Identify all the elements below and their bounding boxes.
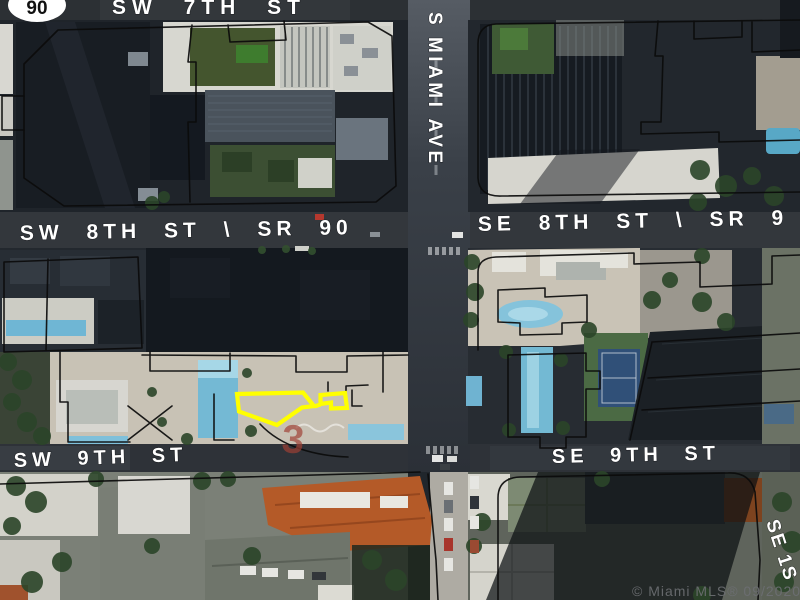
roof-lawn [236, 45, 268, 63]
block-bottom-right [468, 472, 800, 600]
sand-lot [756, 56, 800, 130]
glass-tower [205, 90, 335, 142]
car-gray [370, 232, 380, 237]
roof-path [298, 158, 332, 188]
block-middle-right [466, 248, 800, 444]
pool-shallow [508, 307, 548, 321]
light-paving [556, 20, 624, 56]
aerial-parcel-map[interactable]: SW 7TH ST S MIAMI AVE SW 8TH ST \ SR 90 … [0, 0, 800, 600]
pool [348, 424, 404, 440]
rooftop-unit [492, 252, 526, 272]
pool-small [466, 376, 482, 406]
rooftop-unit [556, 262, 606, 280]
roof-equipment [380, 496, 408, 508]
parked-car [444, 500, 453, 513]
parked-car [444, 538, 453, 551]
roof-detail [300, 270, 370, 320]
garden-patch [268, 160, 294, 182]
block-middle-left [0, 246, 408, 444]
shield-number: 90 [26, 0, 47, 19]
parked-car [470, 540, 479, 553]
light-roof [118, 476, 190, 534]
building-edge-strip [0, 24, 13, 94]
car-white [447, 456, 457, 462]
roof-equipment [300, 492, 370, 508]
bright-facade [336, 118, 388, 160]
roof-dot [295, 246, 309, 251]
rooftop-unit [128, 52, 148, 66]
roof-detail [170, 258, 230, 298]
roof-lawn [500, 28, 528, 50]
tarp-pool [764, 404, 794, 424]
vehicle [312, 572, 326, 580]
block-bottom-left [0, 472, 432, 600]
label-s-miami-ave: S MIAMI AVE [424, 12, 445, 167]
parked-car [470, 516, 479, 529]
vehicle [240, 566, 256, 575]
car-white [432, 455, 443, 462]
car-white [452, 232, 463, 238]
garden-patch [222, 152, 252, 172]
dark-roof [98, 300, 144, 344]
parked-car [470, 476, 479, 489]
car-dark [440, 464, 450, 470]
label-se-9th-st: SE 9TH ST [552, 442, 721, 468]
rooftop-art-numeral: 3 [280, 417, 305, 462]
parked-car [444, 558, 453, 571]
grid-cell [340, 34, 354, 44]
grid-cell [344, 66, 358, 76]
grid-cell [362, 48, 378, 58]
pool-shallow [198, 360, 238, 378]
vehicle [288, 570, 304, 579]
parked-car [444, 518, 453, 531]
rooftop-unit [60, 256, 110, 286]
block-top-left [0, 20, 408, 212]
mls-watermark: © Miami MLS® 09/2020 [632, 583, 800, 599]
label-sw-7th-st: SW 7TH ST [112, 0, 306, 19]
parked-car [444, 482, 453, 495]
parked-car [470, 496, 479, 509]
roof-slats [280, 26, 330, 88]
vehicle [262, 568, 278, 577]
map-canvas: SW 7TH ST S MIAMI AVE SW 8TH ST \ SR 90 … [0, 0, 800, 600]
highlight-connector [314, 405, 321, 407]
dark-edge [780, 0, 800, 58]
roof-inner [66, 390, 118, 424]
building-edge-strip [0, 140, 13, 210]
white-roof [318, 585, 354, 600]
pool-lane [527, 352, 539, 428]
